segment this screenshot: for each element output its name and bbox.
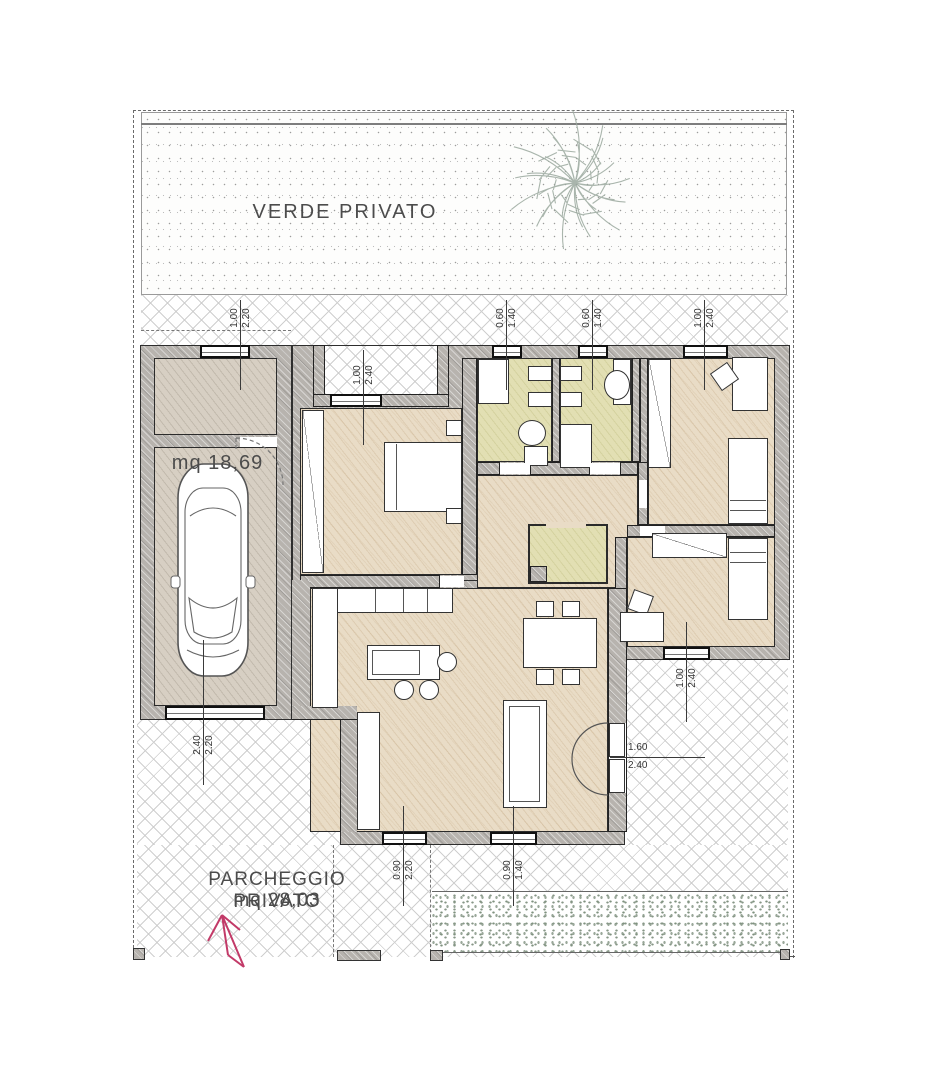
stool: [394, 680, 414, 700]
living-left-wall-connector: [292, 706, 357, 720]
dimension-label: 0.901.40: [502, 847, 526, 893]
dining-chair: [562, 669, 580, 685]
sink: [560, 366, 582, 381]
tv-cabinet: [357, 712, 380, 830]
bed-pillow-line: [730, 552, 766, 553]
parking-area-label: mq 28,03: [162, 890, 392, 912]
dimension-label: 1.002.40: [693, 295, 717, 341]
bidet: [560, 392, 582, 407]
hedge: [432, 891, 788, 953]
living-left-wall-lower: [340, 720, 357, 832]
master-door-opening: [440, 576, 464, 587]
bath1-window: [492, 345, 522, 358]
bath2-window: [578, 345, 608, 358]
dimension-label: 2.402.20: [192, 722, 216, 768]
garden-edge-line: [141, 123, 787, 125]
bedroom1-closet-wall: [640, 358, 648, 470]
living-left-wall-upper: [292, 580, 310, 706]
dimension-label: 1.002.40: [675, 655, 699, 701]
closet-wardrobe: [648, 359, 671, 468]
french-door-swing-arcs: [560, 716, 630, 802]
bed-pillow-line: [730, 562, 766, 563]
garage-area-label: mq 18,69: [140, 452, 295, 475]
sink: [604, 370, 630, 400]
bath1-door-opening: [500, 463, 530, 474]
master-bath-wall: [462, 358, 477, 575]
sink: [528, 366, 552, 381]
washing-machine: [560, 424, 592, 468]
bath2-door-opening: [590, 463, 620, 474]
closet-pillar: [530, 566, 547, 582]
bath2-right-wall: [632, 358, 640, 462]
dashed-line-parking-2: [430, 845, 431, 957]
dining-chair: [536, 601, 554, 617]
garden-label: VERDE PRIVATO: [225, 201, 465, 224]
island-inner: [372, 650, 420, 675]
nightstand: [446, 508, 462, 524]
dining-chair: [562, 601, 580, 617]
dining-table: [523, 618, 597, 668]
kitchen-counter-vertical: [312, 588, 338, 708]
sofa-inner: [509, 706, 540, 802]
desk: [620, 612, 664, 642]
dimension-label: 1.002.40: [352, 352, 376, 398]
stool: [419, 680, 439, 700]
toilet-bowl: [518, 420, 546, 446]
dimension-label: 1.602.40: [628, 739, 660, 777]
dimension-label: 0.601.40: [581, 295, 605, 341]
fence-post: [780, 949, 790, 960]
north-arrow-icon: [200, 905, 260, 971]
hall-wall-seg3: [620, 462, 638, 475]
bed-pillow-line: [730, 500, 766, 501]
fence-post: [133, 948, 145, 960]
desk: [732, 357, 768, 411]
single-bed: [728, 438, 768, 524]
counter-divider: [375, 589, 376, 612]
bed-fold-line: [396, 444, 397, 510]
counter-divider: [427, 589, 428, 612]
tree-icon: [495, 103, 655, 263]
master-bottom-wall: [300, 575, 440, 588]
counter-divider: [403, 589, 404, 612]
nightstand: [446, 420, 462, 436]
living-door: [382, 832, 427, 845]
fence-post: [337, 950, 381, 961]
stool: [437, 652, 457, 672]
dimension-label: 0.601.40: [495, 295, 519, 341]
bath-divider-wall: [552, 358, 560, 462]
garage-door: [165, 706, 265, 720]
single-bed: [728, 538, 768, 620]
wardrobe: [302, 410, 324, 573]
closet-door-opening: [546, 522, 586, 528]
dimension-label: 0.902.20: [392, 847, 416, 893]
garage-window: [200, 345, 250, 358]
storage-room-floor: [154, 358, 277, 435]
bedroom1-door-opening: [639, 480, 647, 508]
bed-pillow-line: [730, 510, 766, 511]
desk: [652, 533, 727, 558]
floor-plan-canvas: VERDE PRIVATO: [0, 0, 929, 1079]
dashed-line-garage-front: [141, 330, 291, 331]
dimension-label: 1.002.20: [229, 295, 253, 341]
bedroom1-window: [683, 345, 728, 358]
hall-wall-seg1: [477, 462, 500, 475]
shower: [478, 359, 509, 404]
bidet: [528, 392, 552, 407]
dining-chair: [536, 669, 554, 685]
fence-post: [430, 950, 443, 961]
paving-niche-overlay: [325, 346, 437, 394]
